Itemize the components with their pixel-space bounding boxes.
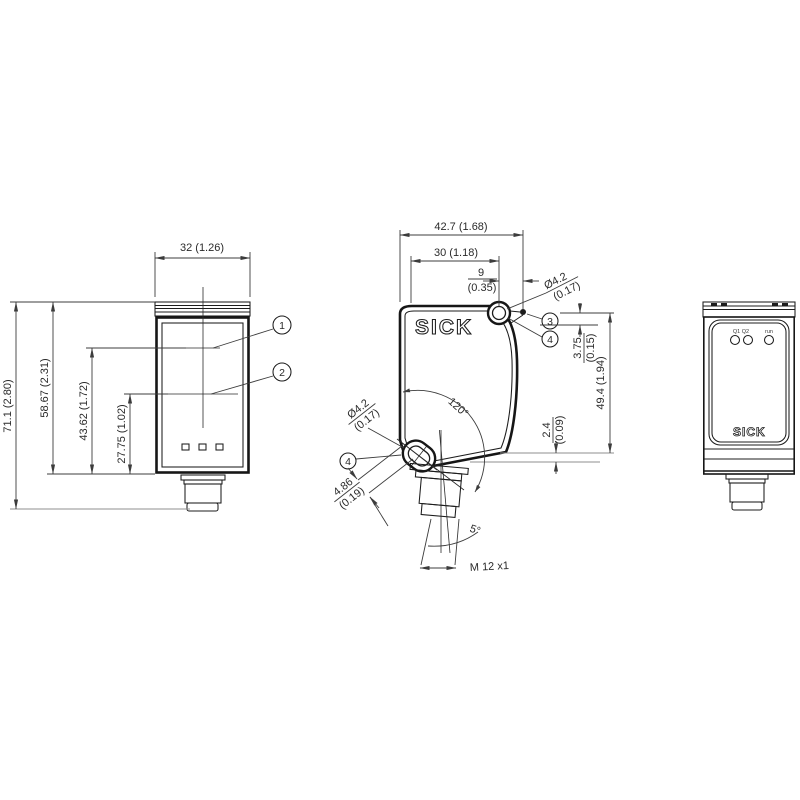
dim-hole-offset-label: 9: [478, 267, 484, 279]
dim-bottom-step-label: 2.4: [541, 422, 553, 437]
callout-3: 3: [527, 313, 558, 329]
callout-2-number: 2: [279, 367, 285, 379]
dim-hole-dia: Ø4.2 (0.17): [507, 266, 584, 309]
dim-front-axis2: 27.75 (1.02): [116, 394, 168, 474]
sick-logo-side: SICK: [415, 316, 473, 339]
rear-led-q2: [744, 336, 753, 345]
callout-4-bottom: 4: [340, 453, 401, 469]
rear-connector: [726, 474, 768, 510]
rear-surface-point: [520, 309, 526, 315]
angle-connector-label: 5°: [468, 523, 482, 538]
rear-led-run: [765, 336, 774, 345]
front-view: 32 (1.26) 71.1 (2.80) 58.67 (2.31) 43.62…: [2, 242, 291, 511]
front-window: [162, 323, 243, 467]
dim-total-height-label: 71.1 (2.80): [2, 379, 14, 432]
front-led-1: [182, 444, 189, 450]
thread-label: M 12 x1: [470, 560, 510, 574]
rear-connector-body: [730, 483, 764, 502]
rear-view: Q1 Q2 run SICK: [703, 302, 795, 510]
rear-led-q-label: Q1 Q2: [733, 329, 749, 335]
dim-side-depth-total: 42.7 (1.68): [400, 221, 523, 309]
dim-bottom-step-inch-label: (0.09): [554, 416, 566, 445]
side-connector-body: [419, 477, 461, 506]
front-led-3: [216, 444, 223, 450]
angle-slot-label: 120°: [446, 396, 471, 420]
rear-housing: [703, 302, 795, 474]
dim-depth-total-label: 42.7 (1.68): [434, 221, 487, 233]
dim-rear-step: 3.75 (0.15): [540, 303, 614, 363]
rear-housing-outline: [704, 317, 794, 474]
dim-rear-height-label: 49.4 (1.94): [595, 356, 607, 409]
callout-1: 1: [213, 316, 291, 348]
dim-housing-height-label: 58.67 (2.31): [39, 358, 51, 417]
sick-logo-rear: SICK: [733, 425, 766, 439]
dim-depth-hole-label: 30 (1.18): [434, 247, 478, 259]
dim-rear-step-label: 3.75: [572, 337, 584, 358]
technical-drawing-page: 32 (1.26) 71.1 (2.80) 58.67 (2.31) 43.62…: [0, 0, 800, 800]
rear-leds: Q1 Q2 run: [731, 329, 774, 345]
front-leds: [182, 444, 223, 450]
top-mounting-hole: [493, 307, 506, 320]
dim-axis2-label: 27.75 (1.02): [116, 404, 128, 463]
dim-front-axis1: 43.62 (1.72): [78, 348, 186, 474]
dim-side-depth-hole: 30 (1.18): [411, 247, 499, 306]
side-connector-thread: [421, 504, 456, 518]
front-connector-body: [185, 484, 221, 503]
callout-4-bottom-number: 4: [345, 456, 351, 468]
dim-axis1-label: 43.62 (1.72): [78, 381, 90, 440]
front-led-2: [199, 444, 206, 450]
front-connector: [181, 475, 225, 511]
rear-led-run-label: run: [765, 329, 773, 335]
callout-3-number: 3: [547, 316, 553, 328]
front-connector-cap: [187, 503, 218, 511]
dim-front-width: 32 (1.26): [155, 242, 250, 297]
rear-led-q1: [731, 336, 740, 345]
callout-2: 2: [211, 363, 291, 394]
dim-width-label: 32 (1.26): [180, 242, 224, 254]
side-view: SICK 42.7 (1.68: [327, 221, 614, 574]
dim-hole-offset: 9 (0.35): [468, 267, 539, 294]
dim-hole-offset-inch-label: (0.35): [468, 282, 497, 294]
angle-connector-dimension: 5°: [428, 523, 482, 546]
dim-slot-dia: Ø4.2 (0.17): [341, 394, 404, 448]
dim-front-housing-height: 58.67 (2.31): [39, 302, 155, 474]
callout-1-number: 1: [279, 320, 285, 332]
rear-connector-cap: [732, 502, 762, 510]
sensor-dimensional-drawing: 32 (1.26) 71.1 (2.80) 58.67 (2.31) 43.62…: [0, 0, 800, 800]
dim-bottom-step: 2.4 (0.09): [470, 416, 600, 474]
callout-4-top-number: 4: [547, 334, 553, 346]
